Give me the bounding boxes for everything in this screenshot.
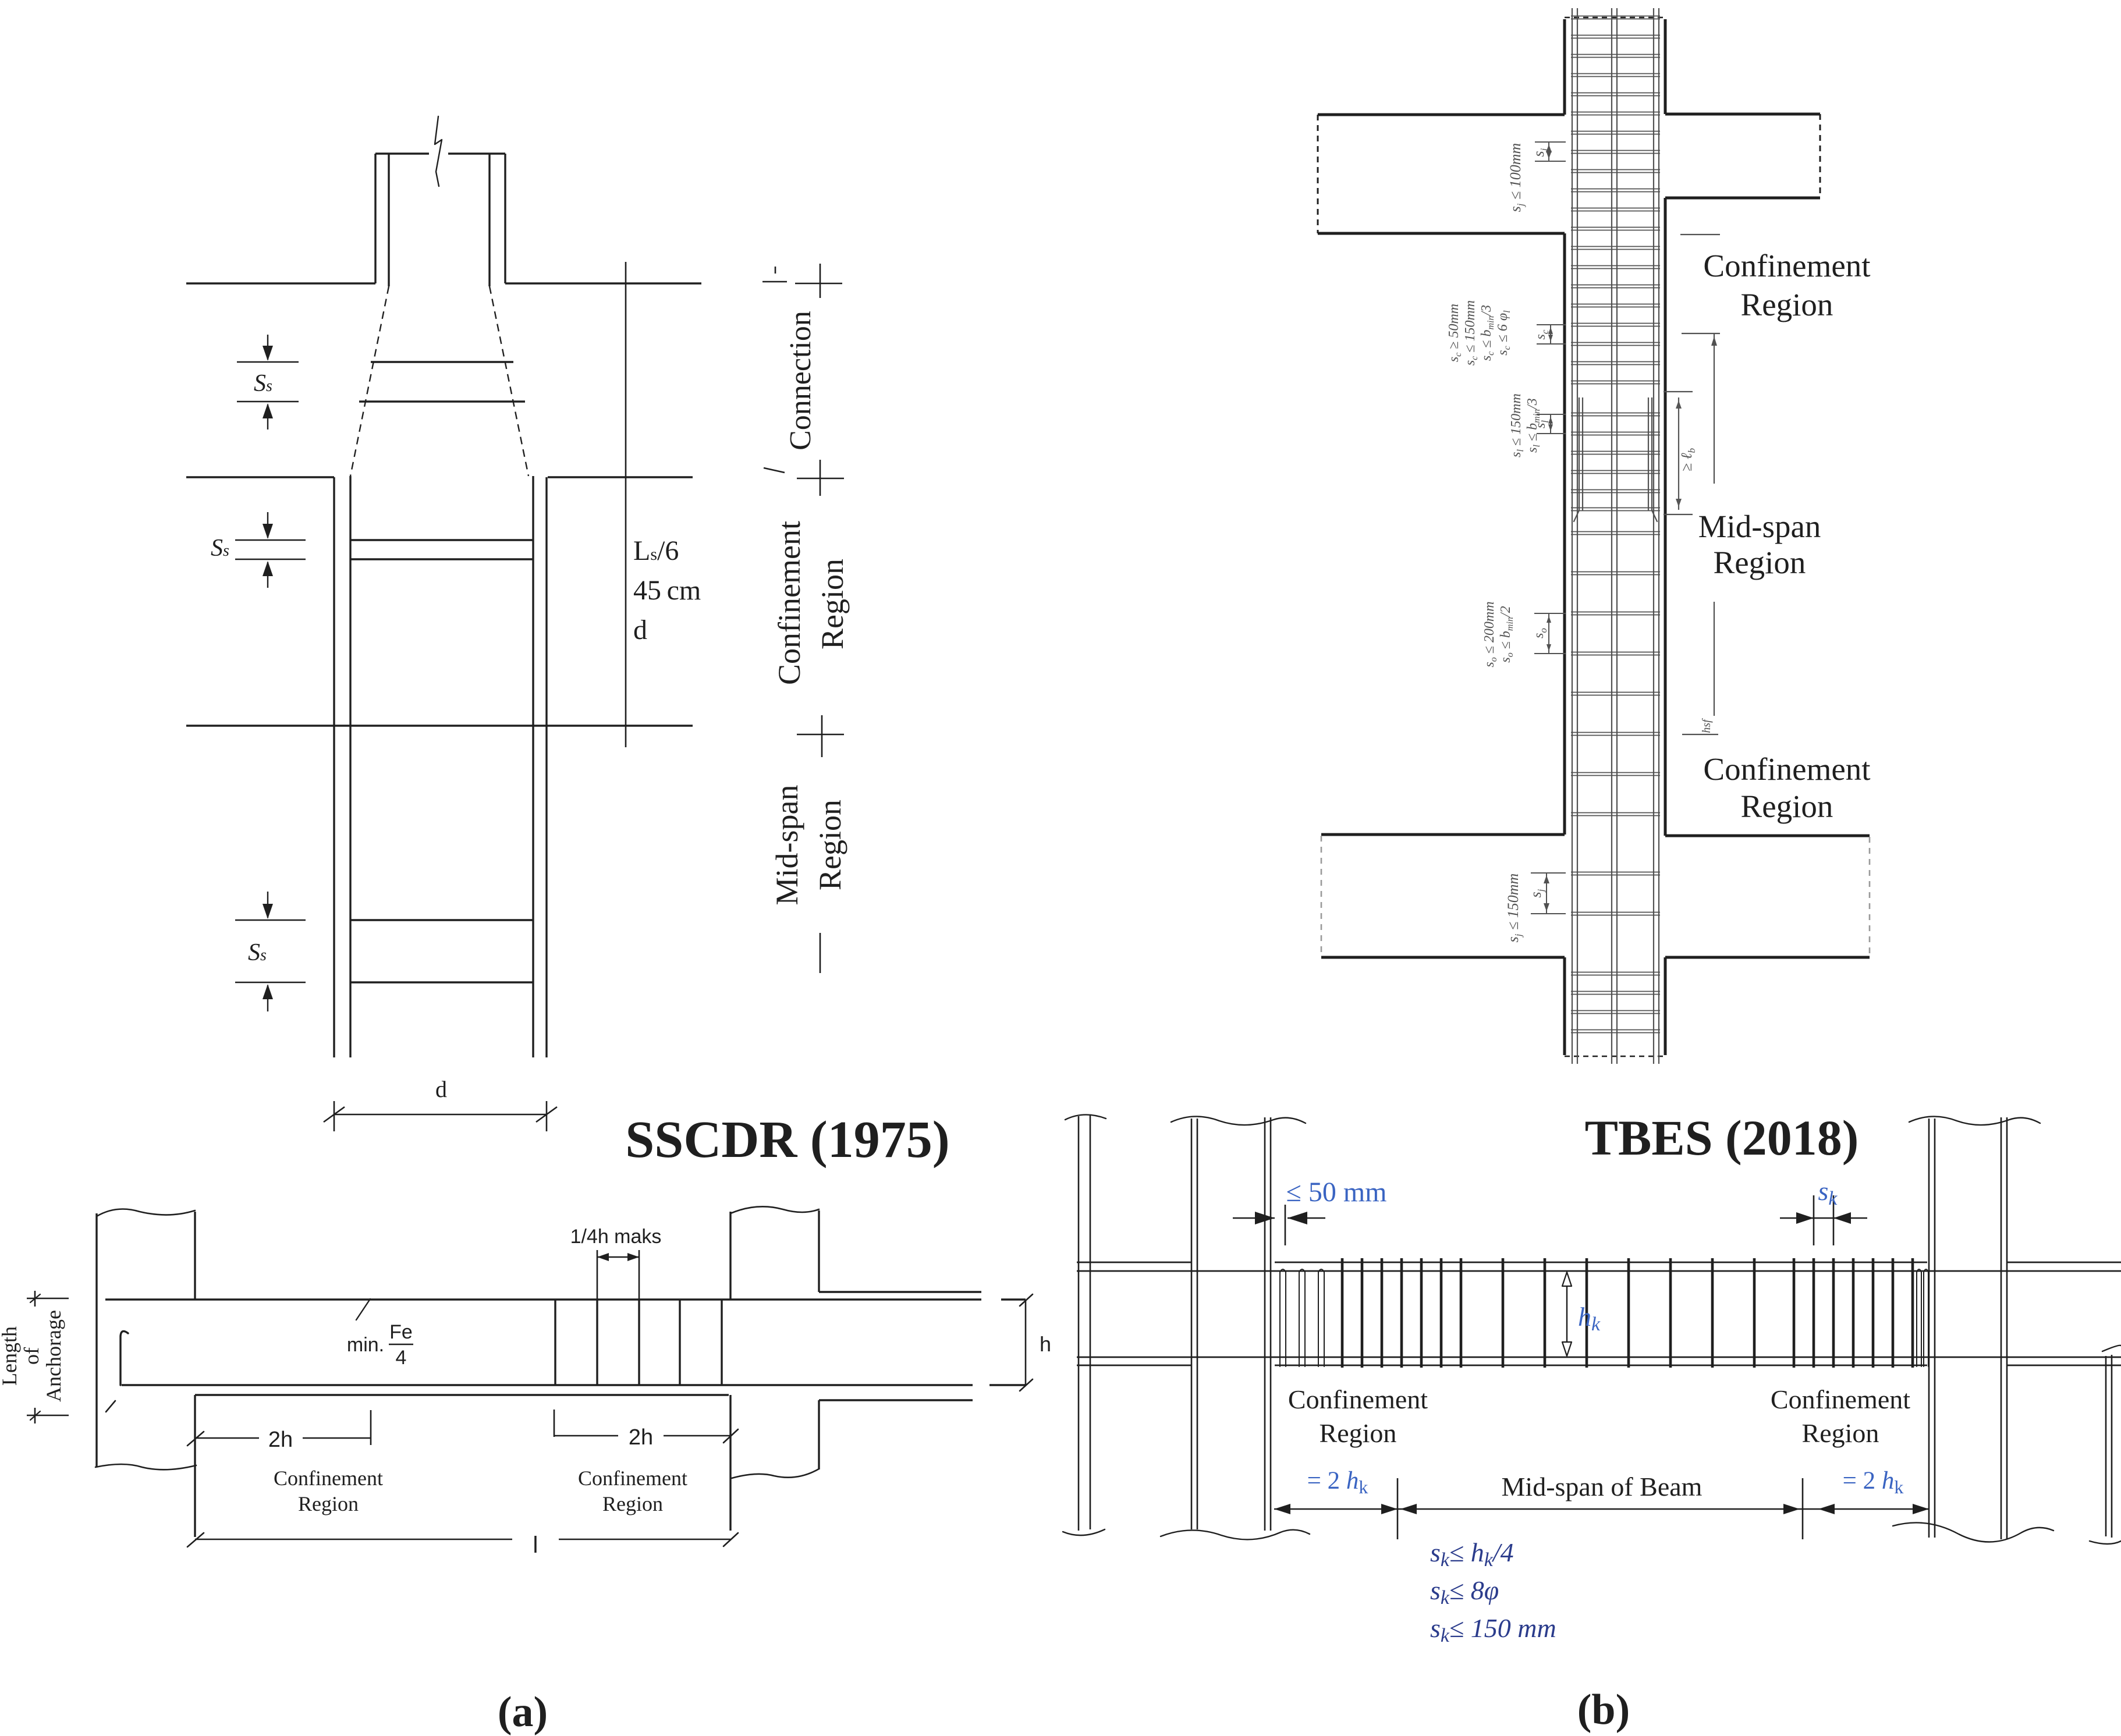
svg-text:min.: min. xyxy=(347,1334,384,1356)
svg-text:2h: 2h xyxy=(629,1425,653,1450)
svg-text:so ≤ 200mm: so ≤ 200mm xyxy=(1482,601,1499,667)
svg-text:2h: 2h xyxy=(268,1428,293,1452)
svg-text:45 cm: 45 cm xyxy=(633,575,701,606)
svg-text:(b): (b) xyxy=(1577,1686,1630,1734)
svg-text:sk≤ 8φ: sk≤ 8φ xyxy=(1430,1575,1499,1609)
svg-text:Region: Region xyxy=(1714,545,1806,580)
svg-text:Region: Region xyxy=(815,559,850,649)
svg-text:of: of xyxy=(20,1347,43,1365)
svg-text:Region: Region xyxy=(602,1492,663,1515)
svg-text:SSCDR (1975): SSCDR (1975) xyxy=(625,1111,950,1169)
svg-text:h: h xyxy=(1040,1332,1051,1356)
svg-text:l: l xyxy=(533,1532,538,1558)
svg-text:Connection: Connection xyxy=(784,311,817,450)
svg-text:Confinement: Confinement xyxy=(772,521,807,685)
svg-text:sk≤ 150 mm: sk≤ 150 mm xyxy=(1430,1613,1556,1646)
svg-text:Region: Region xyxy=(1741,287,1833,322)
svg-text:Region: Region xyxy=(1741,789,1833,824)
svg-text:d: d xyxy=(435,1076,447,1102)
svg-text:Confinement: Confinement xyxy=(1703,248,1870,283)
svg-text:sj ≤ 100mm: sj ≤ 100mm xyxy=(1507,143,1526,212)
svg-text:4: 4 xyxy=(396,1347,407,1369)
svg-text:Confinement: Confinement xyxy=(1288,1384,1428,1414)
svg-text:Mid-span: Mid-span xyxy=(769,785,804,906)
svg-text:Anchorage: Anchorage xyxy=(42,1310,65,1402)
svg-text:Fe: Fe xyxy=(389,1321,413,1343)
svg-text:sl ≤ 150mm: sl ≤ 150mm xyxy=(1509,393,1526,457)
svg-text:Mid-span: Mid-span xyxy=(1698,509,1821,544)
svg-text:Confinement: Confinement xyxy=(1703,751,1870,787)
svg-text:sc ≤ 150mm: sc ≤ 150mm xyxy=(1463,300,1480,365)
svg-text:Region: Region xyxy=(298,1492,359,1515)
svg-text:TBES (2018): TBES (2018) xyxy=(1585,1110,1859,1166)
svg-text:Region: Region xyxy=(1802,1418,1879,1448)
svg-text:sj ≤ 150mm: sj ≤ 150mm xyxy=(1505,874,1524,943)
svg-text:sl ≤ bmin/3: sl ≤ bmin/3 xyxy=(1525,398,1542,453)
svg-text:(a): (a) xyxy=(498,1688,548,1736)
svg-text:Confinement: Confinement xyxy=(274,1467,383,1490)
svg-text:Region: Region xyxy=(1320,1418,1397,1448)
svg-text:d: d xyxy=(633,615,647,645)
svg-text:Length: Length xyxy=(0,1326,21,1386)
svg-text:Mid-span of Beam: Mid-span of Beam xyxy=(1502,1472,1703,1501)
svg-text:≤ 50 mm: ≤ 50 mm xyxy=(1286,1177,1386,1208)
svg-text:1/4h maks: 1/4h maks xyxy=(570,1226,662,1248)
svg-text:hsf: hsf xyxy=(1700,718,1713,733)
svg-text:Confinement: Confinement xyxy=(1771,1384,1910,1414)
svg-text:Region: Region xyxy=(813,800,847,890)
svg-text:Confinement: Confinement xyxy=(578,1467,687,1490)
